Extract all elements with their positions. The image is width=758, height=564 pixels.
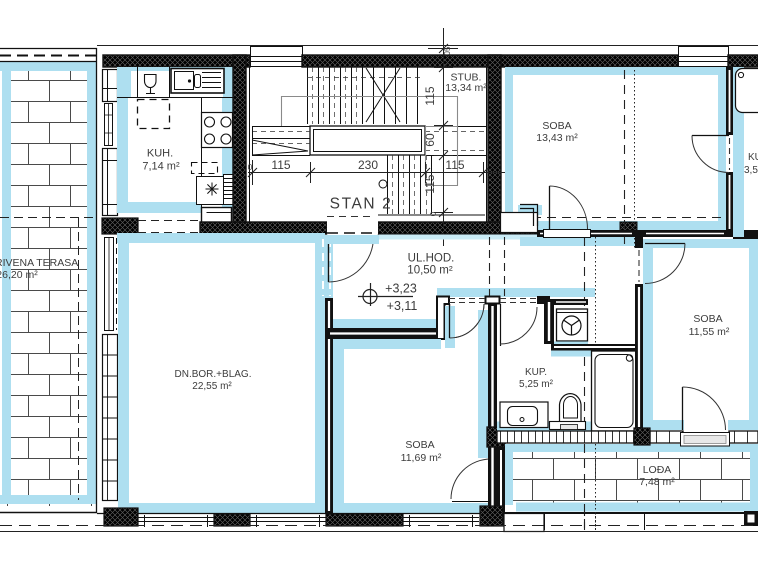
svg-text:+3,23: +3,23 [385, 282, 417, 296]
svg-text:NATKRIVENA TERASA: NATKRIVENA TERASA [0, 257, 78, 269]
svg-text:26,20 m²: 26,20 m² [0, 269, 38, 281]
svg-text:7,48 m²: 7,48 m² [639, 476, 675, 488]
svg-text:5,25 m²: 5,25 m² [519, 379, 554, 390]
svg-text:05: 05 [443, 46, 452, 55]
svg-text:+3,11: +3,11 [387, 299, 418, 313]
svg-text:KUH.: KUH. [147, 148, 173, 160]
svg-text:13,34 m²: 13,34 m² [445, 82, 487, 94]
svg-text:UL.HOD.: UL.HOD. [408, 253, 455, 265]
svg-text:LOĐA: LOĐA [643, 464, 672, 476]
svg-text:3,59: 3,59 [744, 165, 758, 176]
svg-text:11,69 m²: 11,69 m² [401, 452, 442, 464]
svg-text:115: 115 [271, 158, 290, 172]
svg-text:KUP.: KUP. [525, 367, 547, 378]
svg-text:10,50 m²: 10,50 m² [407, 265, 453, 277]
svg-text:SOBA: SOBA [542, 120, 571, 132]
svg-text:60: 60 [423, 133, 437, 147]
svg-text:DN.BOR.+BLAG.: DN.BOR.+BLAG. [175, 369, 252, 380]
svg-text:230: 230 [358, 158, 378, 172]
svg-text:11,55 m²: 11,55 m² [689, 326, 730, 338]
svg-text:115: 115 [423, 174, 437, 193]
svg-text:STAN 2: STAN 2 [330, 196, 393, 213]
svg-text:22,55 m²: 22,55 m² [192, 381, 232, 392]
svg-text:13,43 m²: 13,43 m² [536, 132, 578, 144]
svg-text:0: 0 [429, 211, 438, 216]
svg-text:115: 115 [423, 86, 437, 105]
svg-text:0: 0 [248, 163, 253, 172]
svg-text:115: 115 [445, 158, 464, 172]
svg-text:SOBA: SOBA [693, 313, 722, 325]
svg-text:7,14 m²: 7,14 m² [142, 161, 180, 173]
svg-text:KUP.: KUP. [748, 152, 758, 163]
svg-text:SOBA: SOBA [405, 439, 434, 451]
